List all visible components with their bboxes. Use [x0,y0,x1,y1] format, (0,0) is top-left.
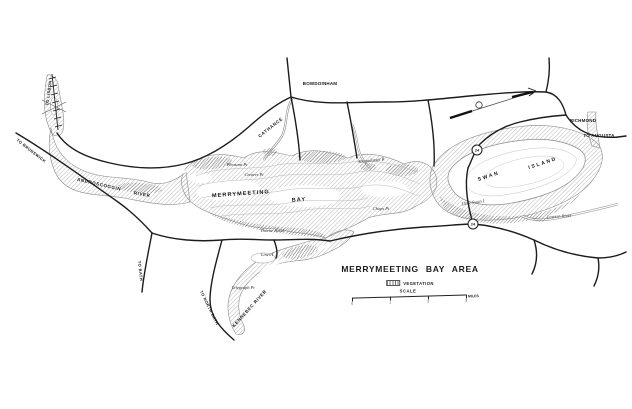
vegetation-swatch-icon [386,280,400,286]
road-richmond-north-spur [546,58,549,92]
scale-miles-label: MILES [468,294,479,298]
lines-island [251,253,275,263]
vegetation-label: VEGETATION [403,281,434,286]
scale-tick-number: 3 [465,298,467,302]
road-branch-e [594,258,599,286]
map-artwork [0,0,632,409]
road-bay-ne [428,100,434,166]
scale-tick-number: 2 [427,300,429,304]
road-cathance-east [291,97,300,160]
road-branch-se [532,240,536,274]
scale-tick-number: 1 [389,301,391,305]
road-to-north-bath [210,240,234,340]
road-abagadasset-west [347,102,357,158]
road-bowdoinham-north [287,58,291,97]
scale-label: SCALE [400,289,417,294]
road-to-bath [142,233,152,292]
vegetation-legend: VEGETATION [386,280,434,286]
scale-tick-number: 0 [351,302,353,306]
merrymeeting-bay-map: MERRYMEETINGBAYSWANISLANDANDROSCOGGINRIV… [0,0,632,409]
road-south-shore [330,224,626,258]
map-title: MERRYMEETING BAY AREA [341,264,478,274]
